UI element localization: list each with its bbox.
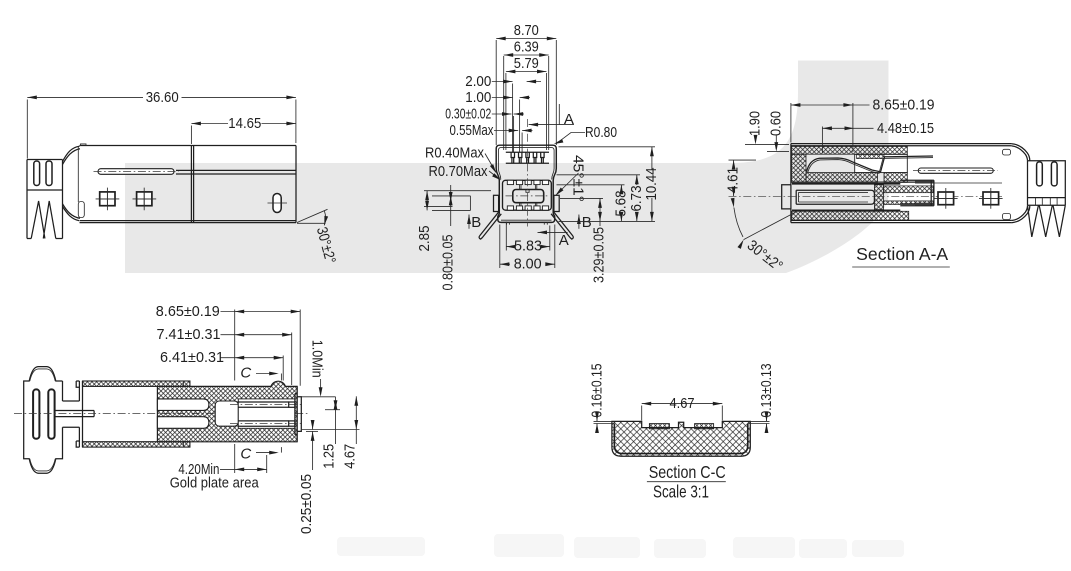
svg-text:8.00: 8.00	[514, 255, 542, 272]
svg-text:R0.70Max: R0.70Max	[429, 163, 488, 180]
svg-text:0.30±0.02: 0.30±0.02	[445, 106, 491, 123]
svg-text:6.39: 6.39	[514, 39, 539, 56]
svg-text:8.65±0.19: 8.65±0.19	[156, 303, 220, 320]
svg-text:4.67: 4.67	[670, 395, 695, 412]
svg-text:Section A-A: Section A-A	[856, 244, 948, 264]
svg-text:0.16±0.15: 0.16±0.15	[589, 364, 606, 418]
svg-text:Section C-C: Section C-C	[649, 462, 726, 482]
svg-text:0.80±0.05: 0.80±0.05	[440, 235, 457, 291]
svg-text:5.83: 5.83	[514, 238, 542, 255]
svg-text:0.25±0.05: 0.25±0.05	[298, 474, 315, 534]
svg-text:Scale 3:1: Scale 3:1	[653, 482, 709, 502]
svg-text:1.25: 1.25	[321, 444, 338, 469]
svg-text:1.0Min: 1.0Min	[309, 340, 326, 378]
svg-text:2.00: 2.00	[465, 73, 491, 90]
svg-text:A: A	[559, 232, 569, 249]
svg-text:4.67: 4.67	[342, 444, 359, 469]
svg-text:R0.40Max: R0.40Max	[425, 145, 484, 162]
svg-text:A: A	[564, 111, 574, 128]
svg-text:R0.80: R0.80	[585, 124, 617, 141]
svg-text:0.13±0.13: 0.13±0.13	[758, 364, 775, 418]
svg-text:Gold plate area: Gold plate area	[170, 475, 260, 492]
svg-text:4.48±0.15: 4.48±0.15	[877, 120, 934, 137]
svg-text:0.55Max: 0.55Max	[450, 122, 494, 139]
svg-text:1.00: 1.00	[465, 89, 491, 106]
svg-text:8.70: 8.70	[514, 22, 539, 39]
svg-text:36.60: 36.60	[146, 89, 179, 106]
svg-text:3.29±0.05: 3.29±0.05	[591, 227, 608, 283]
svg-text:6.73: 6.73	[628, 186, 645, 212]
svg-text:C: C	[240, 365, 251, 382]
svg-text:C: C	[240, 446, 251, 463]
svg-text:5.79: 5.79	[514, 55, 539, 72]
svg-text:0.60: 0.60	[767, 111, 784, 136]
svg-text:14.65: 14.65	[228, 115, 261, 132]
svg-text:2.85: 2.85	[416, 226, 433, 252]
svg-text:8.65±0.19: 8.65±0.19	[873, 97, 935, 114]
svg-text:6.41±0.31: 6.41±0.31	[160, 349, 224, 366]
svg-text:B: B	[471, 214, 481, 231]
svg-text:10.44: 10.44	[643, 168, 660, 201]
svg-text:7.41±0.31: 7.41±0.31	[157, 326, 221, 343]
svg-text:1.90: 1.90	[747, 111, 764, 136]
svg-text:45°±1°: 45°±1°	[570, 155, 587, 202]
svg-text:4.61: 4.61	[724, 167, 741, 193]
svg-text:5.68: 5.68	[612, 191, 629, 217]
